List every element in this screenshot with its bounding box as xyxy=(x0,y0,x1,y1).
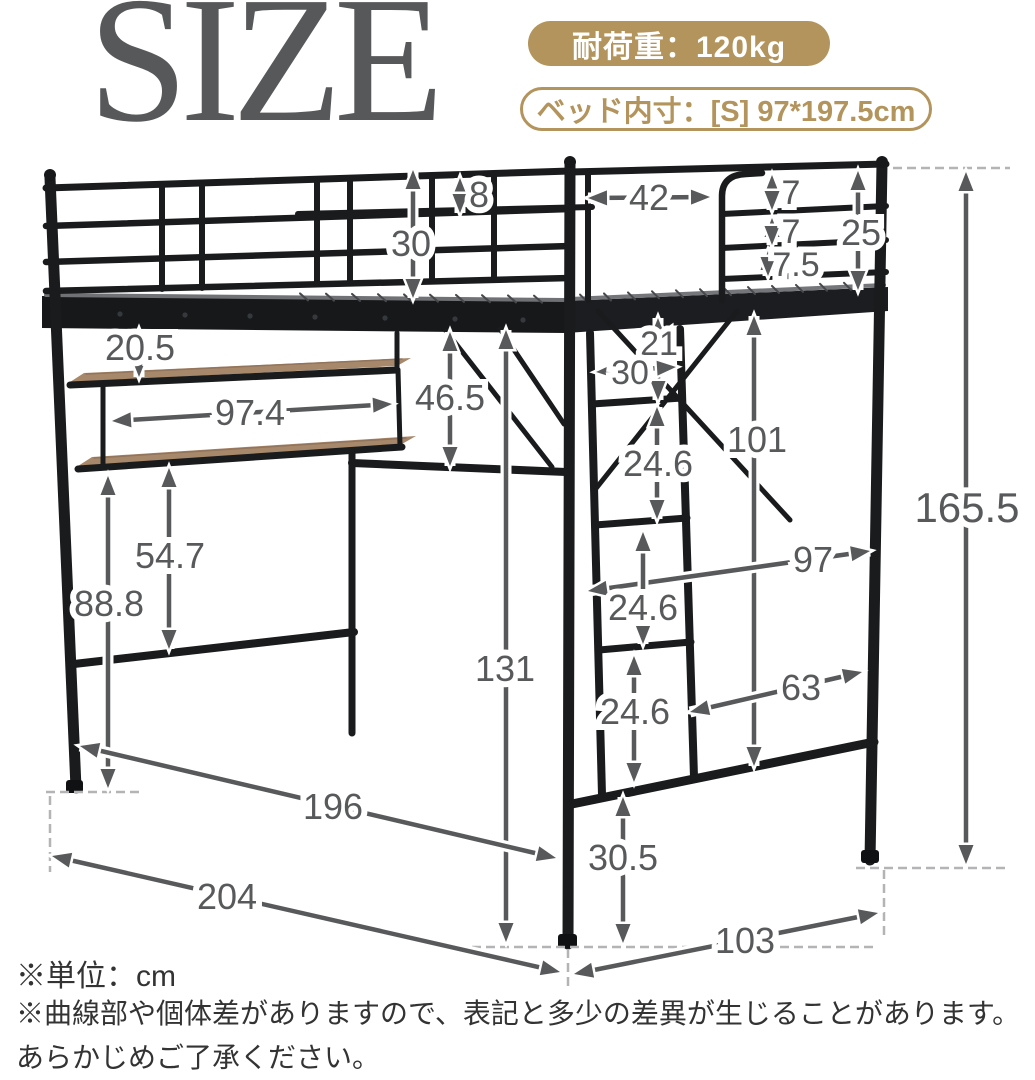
arrowhead xyxy=(574,963,594,978)
rear-right-post xyxy=(870,164,882,860)
dimension-a974: 97.4 xyxy=(112,392,392,433)
dimension-label-a205: 20.5 xyxy=(105,327,175,368)
dimension-label-a103: 103 xyxy=(715,920,775,961)
guard-rails-end-side xyxy=(570,164,886,300)
arrowhead xyxy=(842,669,862,684)
dimension-label-a63: 63 xyxy=(781,667,821,708)
dimension-a246b: 24.6 xyxy=(608,532,678,644)
dimension-label-a204: 204 xyxy=(197,876,257,917)
dimension-label-a246b: 24.6 xyxy=(608,587,678,628)
dimension-a196: 196 xyxy=(80,743,556,861)
post-finial xyxy=(44,169,56,181)
dimension-label-a97: 97 xyxy=(793,539,833,580)
guard-rails-long-side xyxy=(46,171,592,291)
arrowhead xyxy=(850,546,870,561)
dimension-a75: 7.5 xyxy=(761,246,820,284)
left-lower-rail xyxy=(74,632,354,664)
post-finial xyxy=(564,156,576,168)
dimension-a465: 46.5 xyxy=(415,332,485,466)
caveat-note-line1: ※曲線部や個体差がありますので、表記と多少の差異が生じることがあります。 xyxy=(16,992,1020,1032)
dimension-label-a196: 196 xyxy=(303,786,363,827)
dimension-a305: 30.5 xyxy=(588,797,658,943)
arrowhead xyxy=(52,853,72,868)
dimension-label-a7a: 7 xyxy=(782,174,801,212)
rear-left-post xyxy=(50,178,76,788)
dimension-label-a101: 101 xyxy=(727,419,787,460)
dimension-label-a974: 97.4 xyxy=(215,392,285,433)
dimension-label-a888: 88.8 xyxy=(74,583,144,624)
dimension-label-a25: 25 xyxy=(841,212,881,253)
dimension-a42: 42 xyxy=(588,177,710,218)
arrowhead xyxy=(540,960,560,975)
unit-note: ※単位：cm xyxy=(16,951,176,995)
dimension-label-a30g: 30 xyxy=(391,223,431,264)
dimension-label-a75: 7.5 xyxy=(772,246,819,284)
front-corner-post xyxy=(568,164,570,944)
arrowhead xyxy=(858,909,878,924)
dimension-a246c: 24.6 xyxy=(600,656,670,782)
dimension-a63: 63 xyxy=(690,667,862,715)
arrowhead xyxy=(80,743,100,758)
desk-height-rail xyxy=(352,463,566,472)
frame-braces xyxy=(446,311,790,520)
arrowhead xyxy=(588,581,608,596)
dimension-label-a1655: 165.5 xyxy=(914,484,1019,531)
dimension-a1655: 165.5 xyxy=(914,172,1019,864)
dimension-label-a8: 8 xyxy=(469,174,489,215)
ladder-rung xyxy=(595,518,687,525)
loft-bed-dimension-illustration: 8304277257.5165.520.597.446.5213010124.6… xyxy=(0,0,1035,1080)
caveat-note-line2: あらかじめご了承ください。 xyxy=(16,1036,380,1076)
arrowhead xyxy=(536,846,556,861)
dimension-a888: 88.8 xyxy=(74,476,144,788)
post-finial xyxy=(876,156,888,168)
dimension-a7a: 7 xyxy=(765,174,801,212)
dimension-label-a465: 46.5 xyxy=(415,377,485,418)
dimension-a547: 54.7 xyxy=(135,468,205,649)
dimension-label-a30l: 30 xyxy=(611,354,649,392)
dimension-label-a246c: 24.6 xyxy=(600,691,670,732)
dimension-label-a131: 131 xyxy=(475,648,535,689)
dimension-label-a305: 30.5 xyxy=(588,837,658,878)
dimension-label-a246a: 24.6 xyxy=(623,443,693,484)
end-bottom-rail xyxy=(572,742,874,804)
dimension-label-a42: 42 xyxy=(629,177,669,218)
dimension-label-a547: 54.7 xyxy=(135,535,205,576)
product-size-diagram-page: SIZE 耐荷重：120kg ベッド内寸：[S] 97*197.5cm xyxy=(0,0,1035,1080)
dimension-a8: 8 xyxy=(453,174,490,215)
